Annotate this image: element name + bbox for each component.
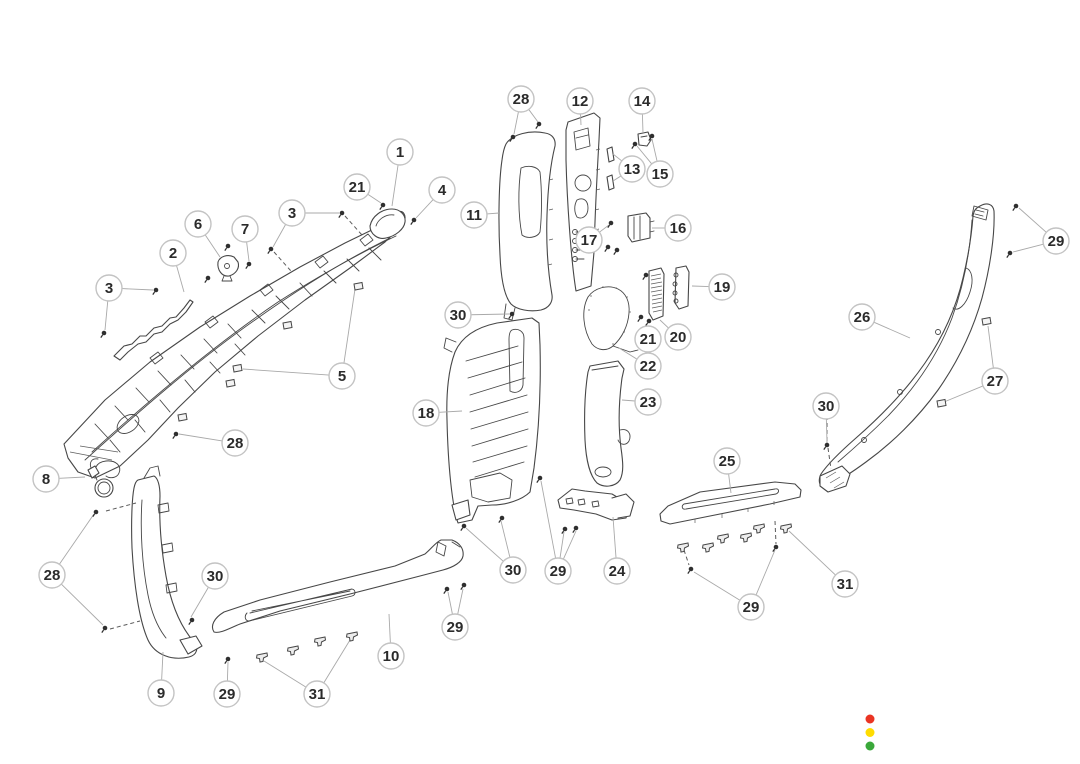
- callout-14[interactable]: 14: [629, 88, 655, 114]
- callout-number: 8: [42, 471, 50, 488]
- callout-20[interactable]: 20: [665, 324, 691, 350]
- screw-fastener-tip: [510, 139, 512, 142]
- leader-line: [205, 235, 220, 257]
- callout-26[interactable]: 26: [849, 304, 875, 330]
- leader-line: [541, 481, 556, 558]
- leader-line: [619, 348, 637, 359]
- clip-fastener: [937, 400, 946, 408]
- callout-29[interactable]: 29: [545, 558, 571, 584]
- callout-number: 14: [634, 93, 651, 110]
- screw-fastener: [102, 331, 107, 336]
- screw-fastener-tip: [499, 520, 501, 523]
- screw-fastener: [1008, 251, 1013, 256]
- clip-fastener: [226, 380, 235, 388]
- callout-number: 29: [447, 619, 464, 636]
- screw-fastener: [774, 545, 779, 550]
- callout-number: 2: [169, 245, 177, 262]
- callout-29[interactable]: 29: [738, 594, 764, 620]
- leader-line: [622, 400, 635, 401]
- leader-line: [1013, 244, 1043, 252]
- callout-number: 28: [513, 91, 530, 108]
- callout-28[interactable]: 28: [39, 562, 65, 588]
- callout-number: 19: [714, 279, 731, 296]
- leader-line: [729, 474, 731, 493]
- callout-number: 22: [640, 358, 657, 375]
- screw-fastener: [247, 262, 252, 267]
- screw-fastener: [633, 142, 638, 147]
- leader-line: [273, 224, 286, 247]
- callout-1[interactable]: 1: [387, 139, 413, 165]
- leader-line: [826, 419, 827, 443]
- callout-number: 3: [105, 280, 113, 297]
- leader-line: [59, 514, 94, 564]
- leader-line: [613, 176, 621, 181]
- assembly-dash-line: [775, 521, 776, 544]
- screw-fastener: [462, 524, 467, 529]
- callout-number: 29: [743, 599, 760, 616]
- leader-line: [487, 213, 499, 214]
- screw-fastener-tip: [205, 280, 207, 283]
- screw-fastener-tip: [101, 335, 103, 338]
- assembly-dash-line: [828, 448, 831, 469]
- callout-13[interactable]: 13: [619, 156, 645, 182]
- callout-number: 21: [349, 179, 366, 196]
- push-pin-fastener: [718, 534, 729, 543]
- screw-fastener-tip: [189, 622, 191, 625]
- callout-number: 30: [207, 568, 224, 585]
- leader-line: [458, 589, 463, 614]
- leader-line: [247, 242, 249, 261]
- screw-fastener: [226, 657, 231, 662]
- callout-17[interactable]: 17: [576, 227, 602, 253]
- assembly-dash-line: [684, 550, 689, 565]
- screw-fastener-tip: [461, 528, 463, 531]
- callout-23[interactable]: 23: [635, 389, 661, 415]
- screw-fastener-tip: [688, 571, 690, 574]
- screw-fastener: [825, 443, 830, 448]
- screw-fastener: [537, 122, 542, 127]
- leader-line: [392, 165, 398, 206]
- callout-19[interactable]: 19: [709, 274, 735, 300]
- leader-line: [642, 114, 643, 133]
- screw-fastener: [615, 248, 620, 253]
- callout-30[interactable]: 30: [500, 557, 526, 583]
- leader-line: [756, 550, 775, 595]
- screw-fastener-tip: [173, 436, 175, 439]
- screw-fastener-tip: [536, 126, 538, 129]
- screw-fastener-tip: [339, 215, 341, 218]
- callout-9[interactable]: 9: [148, 680, 174, 706]
- leader-line: [122, 289, 153, 290]
- callout-number: 15: [652, 166, 669, 183]
- screw-fastener: [340, 211, 345, 216]
- screw-fastener-tip: [643, 277, 645, 280]
- leader-line: [466, 528, 503, 561]
- leader-line: [789, 531, 836, 575]
- screw-fastener-tip: [225, 248, 227, 251]
- leader-line: [61, 584, 103, 625]
- assembly-dash-line: [274, 252, 291, 271]
- leader-line: [944, 386, 983, 402]
- callout-number: 30: [450, 307, 467, 324]
- callout-24[interactable]: 24: [604, 558, 630, 584]
- screw-fastener-tip: [93, 514, 95, 517]
- callout-30[interactable]: 30: [202, 563, 228, 589]
- callout-31[interactable]: 31: [832, 571, 858, 597]
- callout-5[interactable]: 5: [329, 363, 355, 389]
- callout-number: 6: [194, 216, 202, 233]
- leader-line: [227, 662, 228, 681]
- screw-fastener-tip: [573, 530, 575, 533]
- parts-diagram-canvas: 1214367235281214131511161719293026212022…: [0, 0, 1080, 764]
- screw-fastener: [511, 135, 516, 140]
- callout-31[interactable]: 31: [304, 681, 330, 707]
- callout-number: 5: [338, 368, 346, 385]
- callout-6[interactable]: 6: [185, 211, 211, 237]
- callout-number: 12: [572, 93, 589, 110]
- clip-fastener: [982, 318, 991, 326]
- red-status-dot: [866, 715, 875, 724]
- assembly-dash-line: [345, 216, 362, 235]
- callout-15[interactable]: 15: [647, 161, 673, 187]
- screw-fastener-tip: [614, 252, 616, 255]
- callout-number: 11: [466, 207, 482, 224]
- callout-number: 10: [383, 648, 400, 665]
- screw-fastener: [412, 218, 417, 223]
- assembly-dash-line: [110, 621, 140, 629]
- push-pin-fastener: [754, 524, 765, 533]
- assembly-dash-line: [106, 503, 136, 511]
- callout-number: 29: [550, 563, 567, 580]
- screw-fastener: [190, 618, 195, 623]
- callout-30[interactable]: 30: [445, 302, 471, 328]
- clip-fastener: [233, 365, 242, 373]
- callout-number: 30: [505, 562, 522, 579]
- callout-27[interactable]: 27: [982, 368, 1008, 394]
- callout-number: 7: [241, 221, 249, 238]
- callout-number: 23: [640, 394, 657, 411]
- green-status-dot: [866, 742, 875, 751]
- screw-fastener: [647, 319, 652, 324]
- screw-fastener: [510, 312, 515, 317]
- callout-30[interactable]: 30: [813, 393, 839, 419]
- screw-fastener: [538, 476, 543, 481]
- leader-line: [344, 289, 355, 363]
- clip-fastener: [354, 283, 363, 291]
- screw-fastener-tip: [461, 587, 463, 590]
- leader-line: [613, 154, 622, 161]
- callout-number: 28: [227, 435, 244, 452]
- screw-fastener-tip: [411, 222, 413, 225]
- screw-fastener: [639, 315, 644, 320]
- callout-8[interactable]: 8: [33, 466, 59, 492]
- screw-fastener-tip: [632, 146, 634, 149]
- callout-25[interactable]: 25: [714, 448, 740, 474]
- leader-line: [243, 369, 329, 375]
- screw-fastener: [174, 432, 179, 437]
- callout-number: 1: [396, 144, 404, 161]
- screw-fastener: [154, 288, 159, 293]
- callout-number: 31: [837, 576, 854, 593]
- push-pin-fastener: [257, 653, 268, 662]
- callout-21[interactable]: 21: [344, 174, 370, 200]
- screw-fastener-tip: [225, 661, 227, 664]
- push-pin-fastener: [741, 533, 752, 542]
- leader-line: [264, 661, 306, 687]
- push-pin-fastener: [678, 543, 689, 552]
- callout-number: 13: [624, 161, 641, 178]
- screw-fastener-tip: [1013, 208, 1015, 211]
- callout-number: 27: [987, 373, 1004, 390]
- callout-number: 21: [640, 331, 657, 348]
- leader-line: [652, 139, 657, 161]
- leader-line: [988, 326, 993, 368]
- callout-number: 28: [44, 567, 61, 584]
- screw-fastener-tip: [605, 249, 607, 252]
- leader-line: [179, 434, 222, 441]
- screw-fastener-tip: [380, 207, 382, 210]
- screw-fastener: [1014, 204, 1019, 209]
- screw-fastener-tip: [246, 266, 248, 269]
- leader-line: [368, 194, 381, 203]
- callout-number: 25: [719, 453, 736, 470]
- leader-line: [448, 592, 452, 614]
- screw-fastener-tip: [638, 319, 640, 322]
- screw-fastener: [650, 134, 655, 139]
- leader-line: [59, 477, 85, 478]
- screw-fastener-tip: [562, 531, 564, 534]
- push-pin-fastener: [315, 637, 326, 646]
- callout-number: 4: [438, 182, 447, 199]
- callout-number: 26: [854, 309, 871, 326]
- callout-18[interactable]: 18: [413, 400, 439, 426]
- callout-22[interactable]: 22: [635, 353, 661, 379]
- screw-fastener: [94, 510, 99, 515]
- screw-fastener-tip: [646, 323, 648, 326]
- callout-29[interactable]: 29: [442, 614, 468, 640]
- screw-fastener-tip: [268, 251, 270, 254]
- leader-line: [660, 320, 669, 328]
- screw-fastener-tip: [824, 447, 826, 450]
- push-pin-fastener: [347, 632, 358, 641]
- callout-number: 16: [670, 220, 687, 237]
- screw-fastener: [206, 276, 211, 281]
- leader-line: [191, 587, 208, 617]
- screw-fastener: [462, 583, 467, 588]
- screw-fastener-tip: [102, 630, 104, 633]
- leader-line: [324, 640, 350, 683]
- screw-fastener: [609, 221, 614, 226]
- screw-fastener: [500, 516, 505, 521]
- callout-number: 3: [288, 205, 296, 222]
- leader-line: [563, 531, 576, 559]
- leader-line: [416, 200, 433, 218]
- leader-line: [105, 301, 108, 330]
- screw-fastener: [381, 203, 386, 208]
- callout-4[interactable]: 4: [429, 177, 455, 203]
- callout-21[interactable]: 21: [635, 326, 661, 352]
- leader-line: [471, 314, 509, 315]
- screw-fastener: [445, 587, 450, 592]
- leader-line: [439, 411, 462, 412]
- leader-line: [529, 109, 538, 122]
- callout-16[interactable]: 16: [665, 215, 691, 241]
- callout-29[interactable]: 29: [214, 681, 240, 707]
- callout-number: 20: [670, 329, 687, 346]
- callout-overlay-layer: 1214367235281214131511161719293026212022…: [0, 0, 1080, 764]
- screw-fastener: [574, 526, 579, 531]
- callout-28[interactable]: 28: [222, 430, 248, 456]
- screw-fastener-tip: [153, 292, 155, 295]
- leader-line: [389, 614, 390, 643]
- callout-number: 17: [581, 232, 598, 249]
- callout-number: 29: [1048, 233, 1065, 250]
- push-pin-fastener: [288, 646, 299, 655]
- callout-number: 29: [219, 686, 236, 703]
- callout-number: 24: [609, 563, 626, 580]
- screw-fastener-tip: [444, 591, 446, 594]
- screw-fastener: [269, 247, 274, 252]
- leader-line: [177, 266, 184, 292]
- screw-fastener-tip: [537, 480, 539, 483]
- callout-29[interactable]: 29: [1043, 228, 1069, 254]
- screw-fastener: [103, 626, 108, 631]
- callout-10[interactable]: 10: [378, 643, 404, 669]
- callout-11[interactable]: 11: [461, 202, 487, 228]
- leader-line: [514, 112, 518, 134]
- leader-line: [162, 652, 163, 680]
- callout-12[interactable]: 12: [567, 88, 593, 114]
- leader-line: [874, 322, 910, 338]
- callout-7[interactable]: 7: [232, 216, 258, 242]
- screw-fastener: [644, 273, 649, 278]
- leader-line: [501, 521, 510, 557]
- yellow-status-dot: [866, 728, 875, 737]
- callout-number: 30: [818, 398, 835, 415]
- leader-line: [560, 532, 564, 558]
- screw-fastener: [226, 244, 231, 249]
- callout-2[interactable]: 2: [160, 240, 186, 266]
- clip-fastener: [283, 322, 292, 330]
- screw-fastener-tip: [1007, 255, 1009, 258]
- leader-line: [1019, 208, 1046, 232]
- push-pin-fastener: [703, 543, 714, 552]
- screw-fastener: [689, 567, 694, 572]
- callout-28[interactable]: 28: [508, 86, 534, 112]
- callout-3[interactable]: 3: [279, 200, 305, 226]
- leader-line: [692, 286, 709, 287]
- callout-number: 9: [157, 685, 165, 702]
- screw-fastener: [563, 527, 568, 532]
- callout-number: 18: [418, 405, 435, 422]
- leader-line: [694, 572, 740, 600]
- screw-fastener-tip: [649, 138, 651, 141]
- leader-line: [613, 517, 616, 558]
- screw-fastener-tip: [509, 316, 511, 319]
- leader-line: [599, 225, 609, 232]
- callout-3[interactable]: 3: [96, 275, 122, 301]
- callout-number: 31: [309, 686, 326, 703]
- screw-fastener: [606, 245, 611, 250]
- clip-fastener: [178, 414, 187, 422]
